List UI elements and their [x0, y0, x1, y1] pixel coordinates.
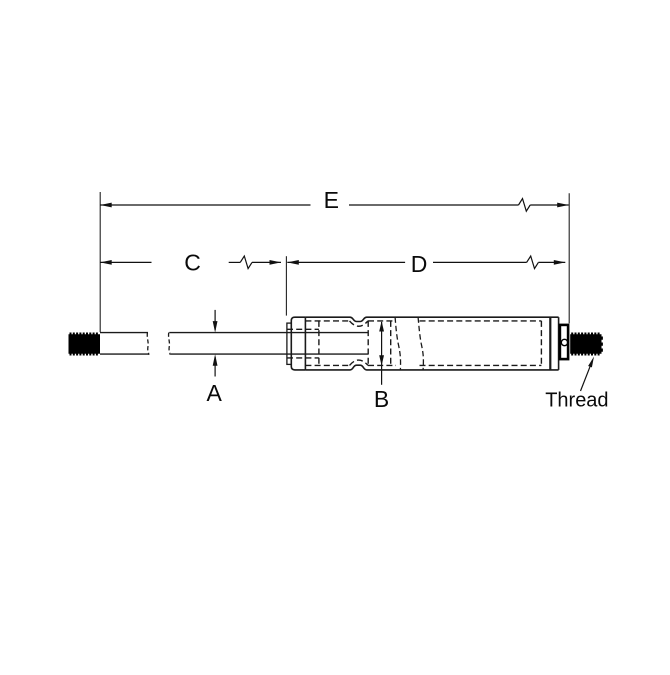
- svg-text:D: D: [411, 251, 428, 277]
- svg-text:C: C: [184, 249, 201, 275]
- svg-text:Thread: Thread: [545, 390, 608, 412]
- svg-text:E: E: [324, 187, 339, 213]
- svg-text:B: B: [374, 386, 389, 412]
- svg-text:A: A: [207, 380, 223, 406]
